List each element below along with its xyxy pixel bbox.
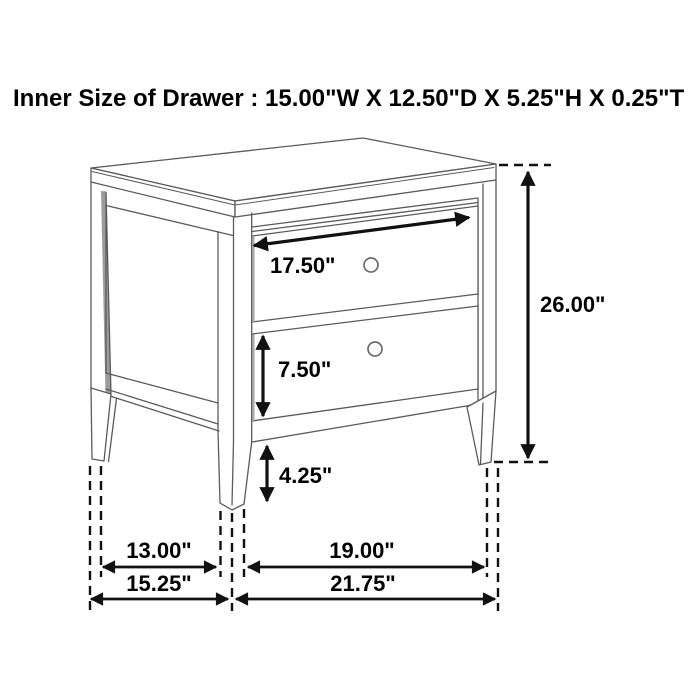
knob-bottom-drawer bbox=[368, 342, 382, 356]
dim-label-front-leg-spacing: 19.00" bbox=[329, 538, 394, 563]
dim-label-drawer-width: 17.50" bbox=[270, 253, 335, 278]
dim-label-side-leg-spacing: 13.00" bbox=[126, 538, 191, 563]
dim-label-overall-depth: 15.25" bbox=[126, 571, 191, 596]
dimension-diagram: Inner Size of Drawer : 15.00"W X 12.50"D… bbox=[0, 0, 700, 700]
dim-label-drawer-height: 7.50" bbox=[278, 357, 331, 382]
diagram-canvas: Inner Size of Drawer : 15.00"W X 12.50"D… bbox=[0, 0, 700, 700]
dim-label-overall-height: 26.00" bbox=[540, 292, 605, 317]
dim-label-overall-width: 21.75" bbox=[330, 571, 395, 596]
page-title: Inner Size of Drawer : 15.00"W X 12.50"D… bbox=[13, 85, 684, 112]
dim-label-leg-clearance: 4.25" bbox=[279, 463, 332, 488]
knob-top-drawer bbox=[364, 258, 378, 272]
front-right-leg bbox=[467, 391, 496, 465]
nightstand-drawing bbox=[91, 138, 496, 510]
back-left-leg bbox=[91, 388, 117, 462]
side-panel bbox=[91, 182, 233, 431]
